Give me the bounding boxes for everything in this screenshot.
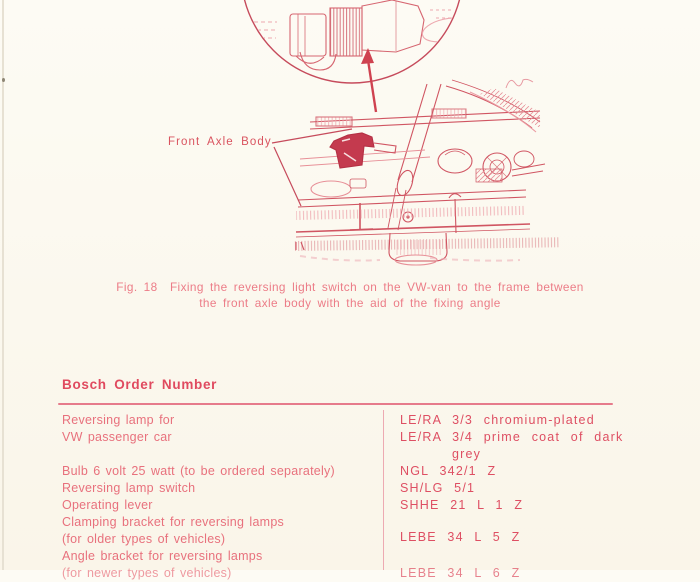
frame-drawing (272, 80, 560, 265)
number-cell: LE/RA 3/3 chromium-plated LE/RA 3/4 prim… (338, 412, 638, 463)
item-cell: Angle bracket for reversing lamps (0, 548, 338, 565)
axle-body-label: Front Axle Body (168, 136, 272, 148)
item-cell: Reversing lamp for VW passenger car (0, 412, 338, 446)
magnify-arrow-icon (361, 48, 376, 112)
item-cell: Reversing lamp switch (0, 480, 338, 497)
number-cell: SH/LG 5/1 (338, 480, 638, 497)
heading-rule (58, 403, 613, 405)
number-cell: LEBE 34 L 5 Z (338, 514, 638, 546)
figure-caption: Fig. 18 Fixing the reversing light switc… (0, 279, 700, 311)
signature-scribble (506, 79, 533, 88)
scanned-manual-page: { "page": { "background": "#fbf8ee", "in… (0, 0, 700, 570)
item-cell: Operating lever (0, 497, 338, 514)
item-cell: Bulb 6 volt 25 watt (to be ordered separ… (0, 463, 338, 480)
item-cell: Clamping bracket for reversing lamps (fo… (0, 514, 338, 548)
figure-caption-line1: Fig. 18 Fixing the reversing light switc… (0, 279, 700, 295)
switch-detail-drawing (247, 0, 472, 70)
number-cell: NGL 342/1 Z (338, 463, 638, 480)
table-row: Reversing lamp for VW passenger car LE/R… (0, 412, 700, 463)
item-cell: (for newer types of vehicles) (0, 565, 338, 582)
order-number-table: Reversing lamp for VW passenger car LE/R… (0, 412, 700, 582)
figure-caption-line2: the front axle body with the aid of the … (0, 295, 700, 311)
table-row: Bulb 6 volt 25 watt (to be ordered separ… (0, 463, 700, 480)
table-row: Angle bracket for reversing lamps (0, 548, 700, 565)
section-heading: Bosch Order Number (62, 377, 217, 392)
number-cell: LEBE 34 L 6 Z (338, 565, 638, 582)
reversing-light-switch (330, 133, 396, 168)
table-row: Operating lever SHHE 21 L 1 Z (0, 497, 700, 514)
number-cell: SHHE 21 L 1 Z (338, 497, 638, 514)
table-row: Reversing lamp switch SH/LG 5/1 (0, 480, 700, 497)
fixing-angle-bracket (389, 233, 447, 265)
table-row-partial: (for newer types of vehicles) LEBE 34 L … (0, 565, 700, 582)
table-row: Clamping bracket for reversing lamps (fo… (0, 514, 700, 548)
